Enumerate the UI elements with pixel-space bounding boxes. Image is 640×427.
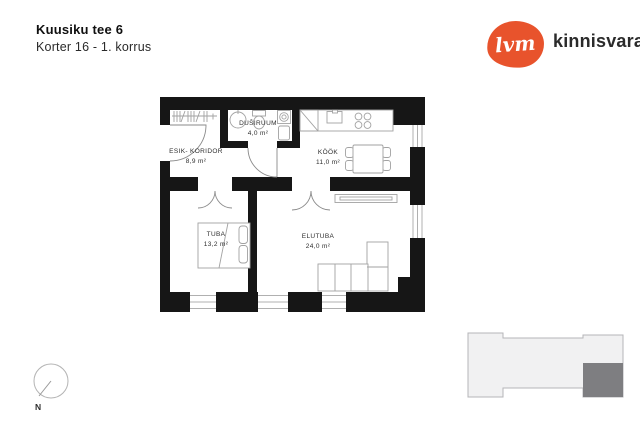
apartment-highlight bbox=[583, 363, 623, 397]
kitchen-counter bbox=[300, 110, 393, 131]
room-name: KÖÖK bbox=[316, 148, 340, 158]
compass-north-label: N bbox=[35, 402, 41, 412]
floor-plan-drawing bbox=[160, 95, 425, 317]
fixtures bbox=[172, 110, 397, 291]
room-area: 4,0 m² bbox=[239, 129, 277, 139]
room-label-elutuba: ELUTUBA 24,0 m² bbox=[302, 232, 334, 251]
page-subtitle: Korter 16 - 1. korrus bbox=[36, 40, 151, 54]
room-area: 11,0 m² bbox=[316, 158, 340, 168]
header: Kuusiku tee 6 Korter 16 - 1. korrus bbox=[36, 22, 151, 54]
bedroom-double-door bbox=[198, 191, 232, 208]
room-label-tuba: TUBA 13,2 m² bbox=[204, 230, 229, 249]
lvm-logo-text: lvm bbox=[494, 30, 536, 59]
room-name: TUBA bbox=[204, 230, 229, 240]
room-name: ELUTUBA bbox=[302, 232, 334, 242]
boiler bbox=[279, 126, 290, 140]
compass-needle bbox=[39, 381, 51, 396]
wardrobe bbox=[172, 111, 217, 122]
kitchen-sink bbox=[327, 110, 342, 123]
dining-table bbox=[353, 145, 383, 173]
room-label-dusiruum: DUŠIRUUM 4,0 m² bbox=[239, 119, 277, 138]
dining-set bbox=[346, 145, 391, 173]
floor-plan-sheet: Kuusiku tee 6 Korter 16 - 1. korrus lvm … bbox=[0, 0, 640, 427]
washing-machine bbox=[278, 111, 291, 124]
room-label-kook: KÖÖK 11,0 m² bbox=[316, 148, 340, 167]
chair bbox=[383, 161, 391, 171]
chair bbox=[346, 148, 354, 158]
radiator bbox=[335, 195, 397, 203]
livingroom-double-door bbox=[292, 191, 330, 210]
chair bbox=[383, 148, 391, 158]
room-area: 8,9 m² bbox=[169, 157, 223, 167]
room-area: 13,2 m² bbox=[204, 240, 229, 250]
bathroom-door bbox=[248, 148, 277, 177]
page-title: Kuusiku tee 6 bbox=[36, 22, 151, 37]
lvm-logo-icon: lvm bbox=[485, 18, 547, 71]
brand-name: kinnisvara bbox=[553, 31, 640, 52]
room-name: ESIK- KORIDOR bbox=[169, 147, 223, 157]
site-plan bbox=[466, 330, 626, 400]
compass: N bbox=[28, 358, 78, 413]
room-label-esik-koridor: ESIK- KORIDOR 8,9 m² bbox=[169, 147, 223, 166]
chair bbox=[346, 161, 354, 171]
room-area: 24,0 m² bbox=[302, 242, 334, 252]
room-name: DUŠIRUUM bbox=[239, 119, 277, 129]
